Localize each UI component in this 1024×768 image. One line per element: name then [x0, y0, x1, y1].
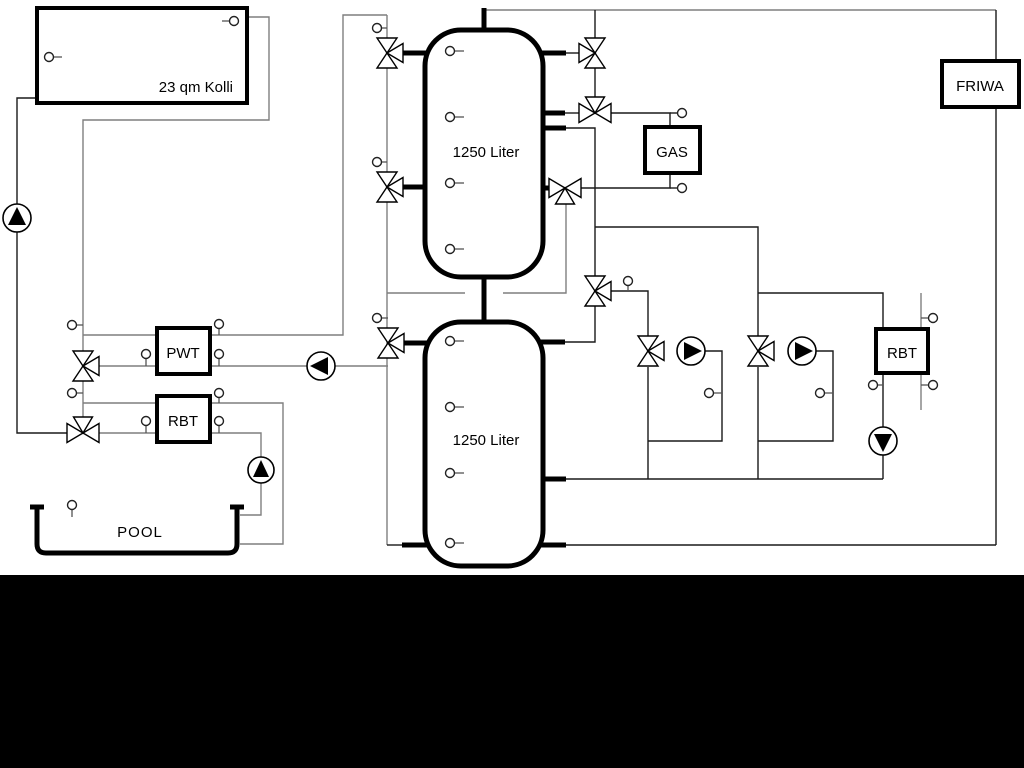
friwa-label: FRIWA	[956, 78, 1004, 95]
gas-label: GAS	[656, 144, 688, 161]
pump-down-icon	[869, 427, 897, 455]
pump-up-icon	[3, 204, 31, 232]
rbt-right-label: RBT	[887, 345, 917, 362]
hydraulic-schematic: 1250 Liter 1250 Liter 23 qm Kolli PWT RB…	[0, 0, 1024, 768]
collector-label: 23 qm Kolli	[159, 79, 233, 96]
bottom-black-bar	[0, 575, 1024, 768]
pump-right-icon	[677, 337, 705, 365]
temperature-sensor-icon	[678, 109, 687, 118]
pool-label: POOL	[117, 524, 163, 541]
pwt-label: PWT	[166, 345, 199, 362]
temperature-sensor-icon	[678, 184, 687, 193]
pump-left-icon	[307, 352, 335, 380]
tank-bottom-label: 1250 Liter	[453, 432, 520, 449]
rbt-left-label: RBT	[168, 413, 198, 430]
tank-top-label: 1250 Liter	[453, 144, 520, 161]
pump-right-icon	[788, 337, 816, 365]
pump-up-icon	[248, 457, 274, 483]
